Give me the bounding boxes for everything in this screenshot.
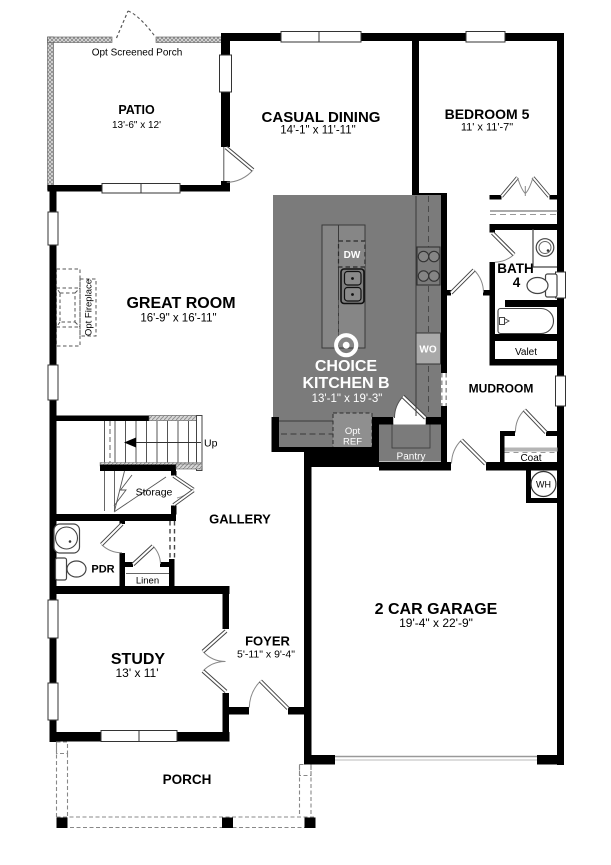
svg-text:13'-6" x 12': 13'-6" x 12': [112, 120, 161, 131]
svg-text:Opt: Opt: [345, 426, 361, 437]
svg-text:GALLERY: GALLERY: [209, 512, 271, 527]
svg-text:Pantry: Pantry: [397, 452, 426, 463]
svg-text:PDR: PDR: [91, 564, 114, 576]
svg-text:REF: REF: [343, 437, 362, 448]
svg-text:Storage: Storage: [136, 487, 173, 499]
svg-text:19'-4" x 22'-9": 19'-4" x 22'-9": [399, 616, 473, 630]
svg-text:FOYER: FOYER: [245, 634, 290, 649]
svg-text:13' x 11': 13' x 11': [115, 666, 158, 680]
svg-text:GREAT ROOM: GREAT ROOM: [126, 295, 235, 312]
svg-text:11' x 11'-7": 11' x 11'-7": [461, 122, 513, 134]
svg-text:MUDROOM: MUDROOM: [469, 382, 534, 396]
svg-text:14'-1" x 11'-11": 14'-1" x 11'-11": [280, 125, 355, 137]
svg-text:5'-11" x 9'-4": 5'-11" x 9'-4": [237, 649, 295, 661]
svg-text:WH: WH: [536, 480, 551, 490]
svg-text:4: 4: [513, 275, 521, 290]
svg-text:KITCHEN B: KITCHEN B: [302, 375, 389, 392]
svg-text:Opt Screened Porch: Opt Screened Porch: [92, 48, 183, 59]
svg-text:CHOICE: CHOICE: [315, 358, 378, 375]
svg-text:DW: DW: [344, 250, 361, 261]
svg-text:13'-1" x 19'-3": 13'-1" x 19'-3": [312, 393, 383, 405]
svg-text:PATIO: PATIO: [118, 103, 155, 117]
svg-text:BEDROOM 5: BEDROOM 5: [445, 106, 530, 122]
svg-text:Valet: Valet: [515, 347, 537, 358]
svg-text:Opt Fireplace: Opt Fireplace: [84, 279, 95, 336]
svg-text:Up: Up: [204, 438, 218, 450]
svg-text:BATH: BATH: [497, 261, 534, 276]
svg-text:CASUAL DINING: CASUAL DINING: [262, 109, 381, 126]
svg-text:16'-9" x 16'-11": 16'-9" x 16'-11": [140, 313, 216, 325]
svg-text:Linen: Linen: [136, 576, 159, 587]
svg-text:WO: WO: [419, 345, 436, 356]
svg-text:PORCH: PORCH: [163, 772, 212, 787]
